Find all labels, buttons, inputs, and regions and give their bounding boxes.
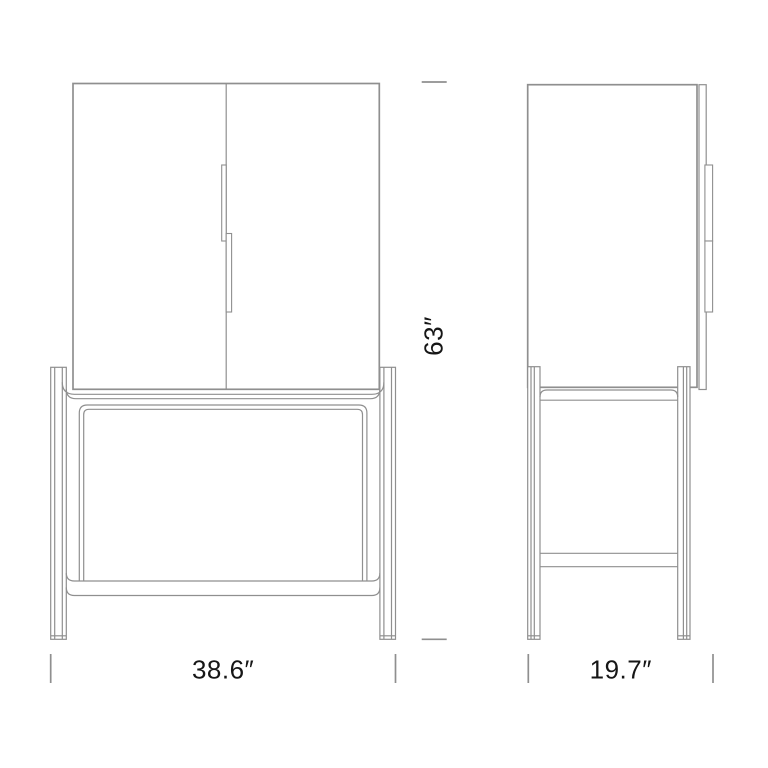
door-handle-right (226, 234, 231, 313)
cabinet-box-side (528, 85, 697, 388)
door-handle-left (222, 165, 227, 241)
front-apron-frame (79, 405, 367, 581)
door-handle-side (705, 165, 713, 312)
front-lower-stretcher (66, 573, 380, 596)
cabinet-front (73, 84, 379, 390)
front-left-leg (51, 367, 67, 639)
side-view (528, 85, 713, 640)
front-right-leg (380, 367, 396, 639)
side-lower-stretcher (540, 553, 678, 566)
side-top-rail (540, 390, 678, 400)
base-frame-side (528, 367, 690, 640)
height-dimension-label: 63″ (418, 316, 449, 356)
depth-dimension-label: 19.7″ (590, 654, 652, 685)
height-dimension (422, 82, 447, 639)
width-dimension-label: 38.6″ (192, 654, 254, 685)
furniture-dimension-drawing: 63″ 38.6″ 19.7″ (0, 0, 768, 768)
base-frame-front (51, 367, 396, 639)
front-view (51, 84, 396, 640)
drawing-linework (0, 0, 768, 768)
side-left-leg (528, 367, 540, 640)
side-right-leg (678, 367, 690, 640)
